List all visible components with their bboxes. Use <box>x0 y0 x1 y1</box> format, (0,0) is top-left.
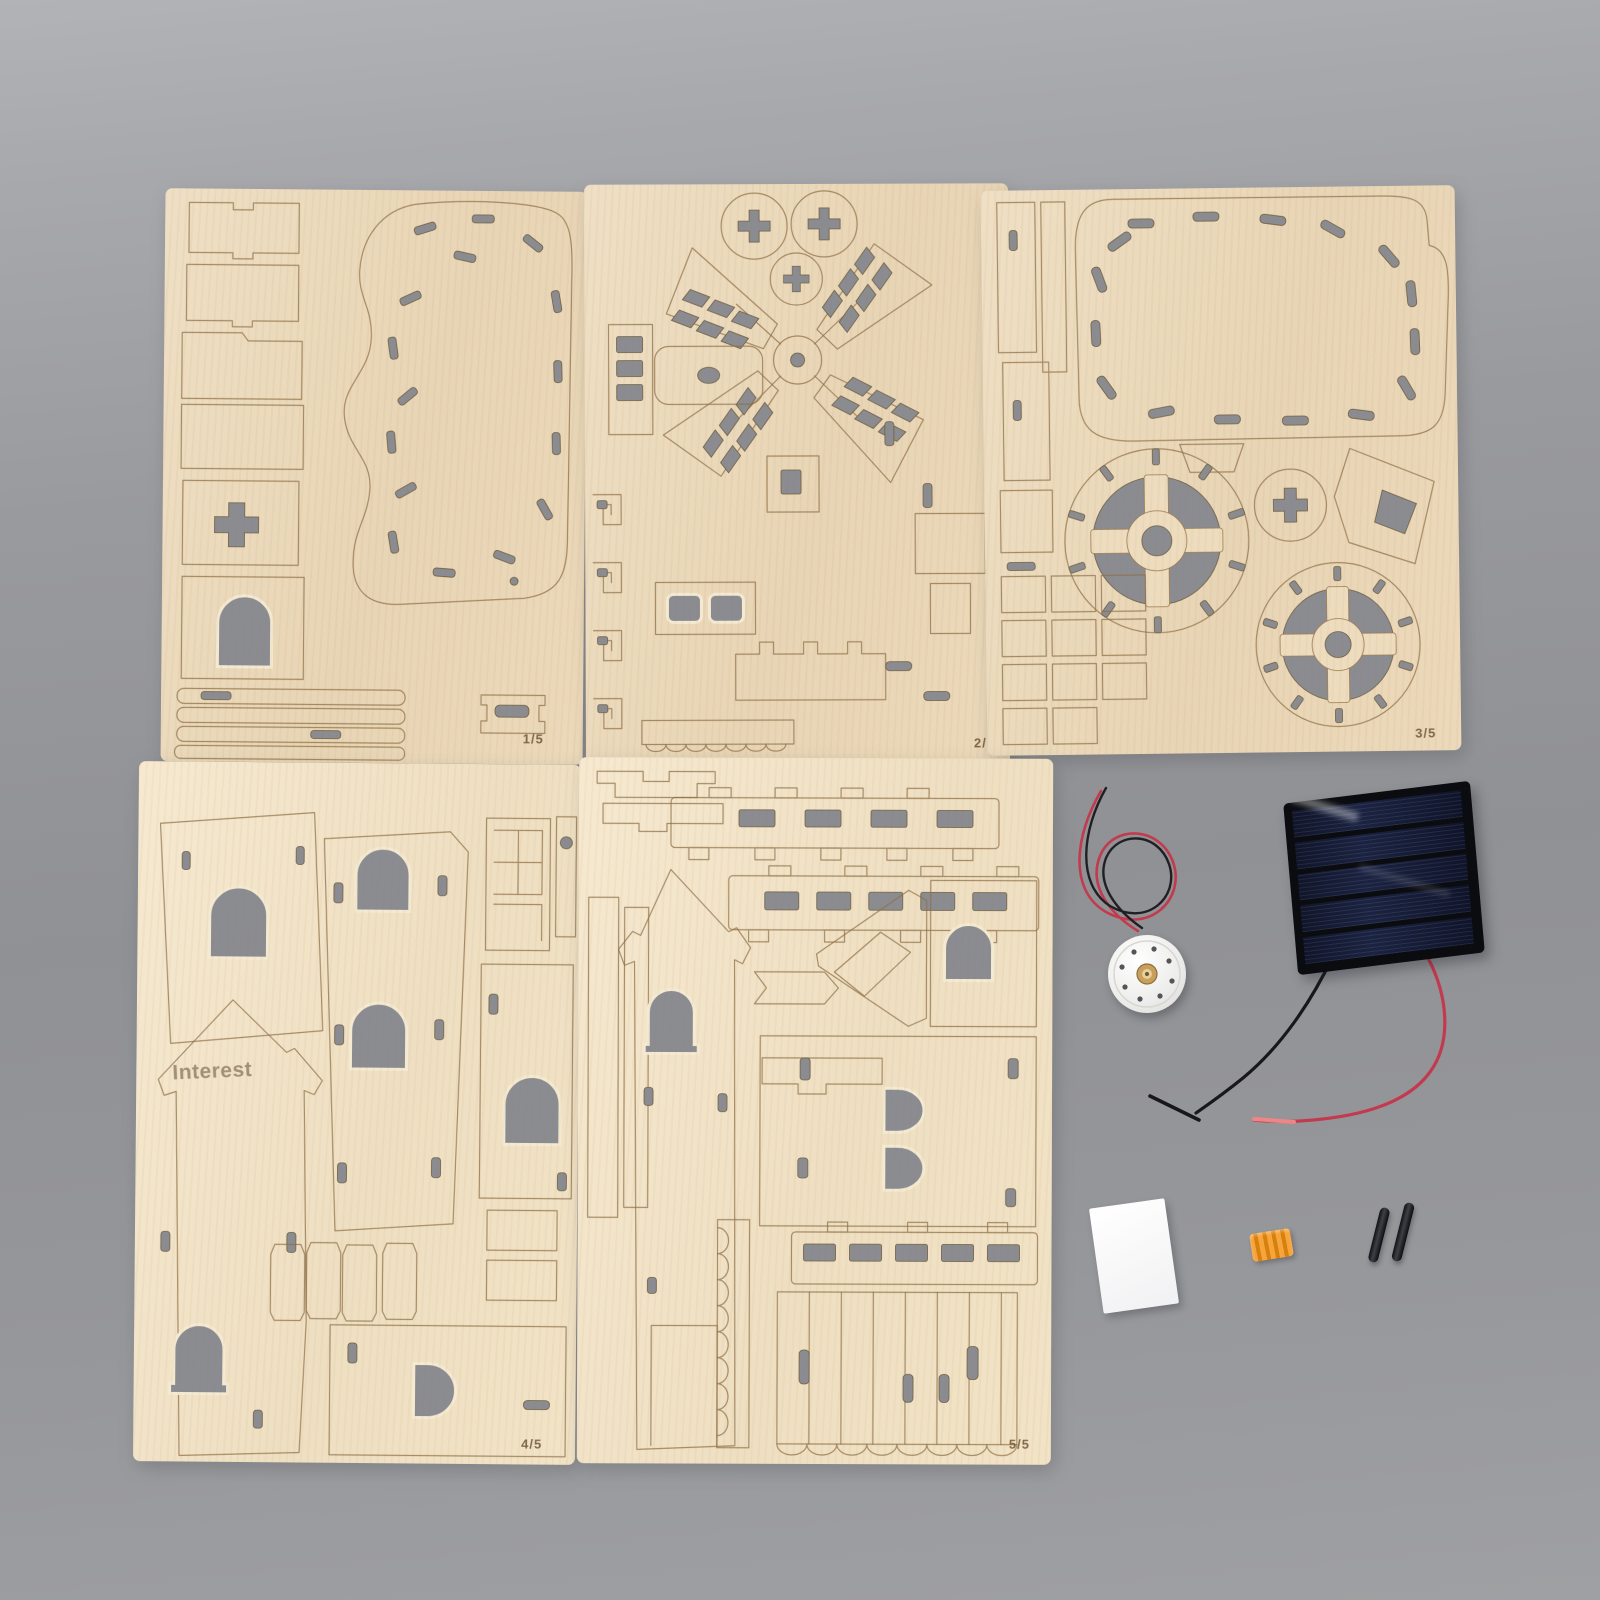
white-pad <box>1089 1198 1179 1314</box>
plywood-sheet-5: 5/5 <box>577 757 1053 1465</box>
black-wire <box>1196 958 1332 1113</box>
dc-motor <box>1108 935 1186 1013</box>
red-wire <box>1254 958 1445 1121</box>
plywood-sheet-4: Interest 4/5 <box>133 761 581 1465</box>
sheet-3-cut-pattern <box>981 185 1462 756</box>
plywood-sheet-2: 2/5 <box>584 183 1010 766</box>
axle-pin <box>1367 1207 1390 1264</box>
sheet-number: 1/5 <box>523 731 544 746</box>
sheet-5-cut-pattern <box>577 757 1053 1465</box>
black-wire-tip <box>1150 1096 1199 1120</box>
sheet-1-cut-pattern <box>161 188 588 765</box>
sheet-2-cut-pattern <box>584 183 1010 766</box>
photo-scene: 1/5 <box>0 0 1600 1600</box>
sheet-4-cut-pattern <box>133 761 581 1465</box>
axle-pin <box>1391 1202 1415 1263</box>
sheet-number: 4/5 <box>521 1436 542 1451</box>
plywood-sheet-3: 3/5 <box>981 185 1462 756</box>
motor-wire-red <box>1079 791 1175 931</box>
sheet-number: 3/5 <box>1415 725 1436 740</box>
orange-coupling <box>1249 1228 1294 1262</box>
red-wire-tip <box>1254 1119 1294 1122</box>
solar-panel <box>1283 781 1485 975</box>
motor-face <box>1108 935 1186 1013</box>
sheet-number: 5/5 <box>1009 1437 1030 1452</box>
plywood-sheet-1: 1/5 <box>161 188 588 765</box>
engraving-text: Interest <box>172 1058 253 1085</box>
motor-wire-black <box>1086 788 1171 928</box>
